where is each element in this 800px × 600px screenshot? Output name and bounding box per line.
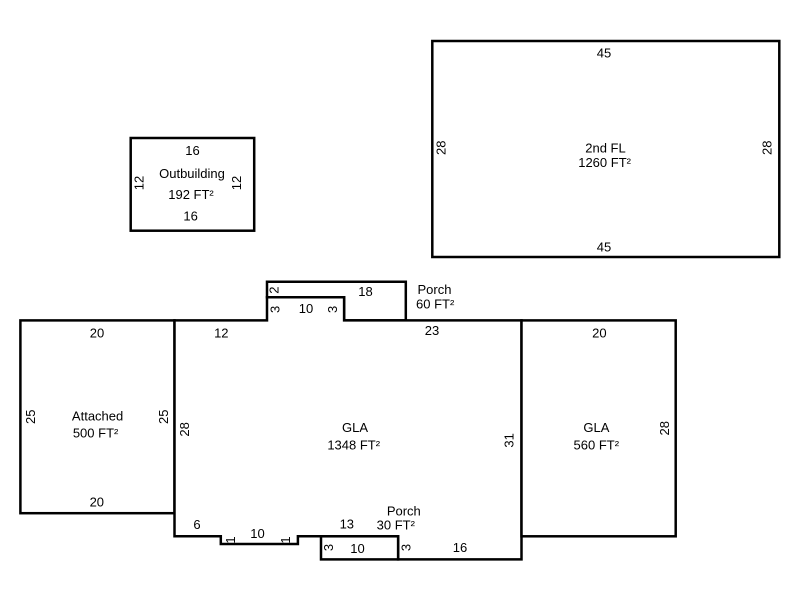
svg-text:10: 10 xyxy=(299,301,313,316)
svg-text:45: 45 xyxy=(597,239,611,254)
svg-text:560 FT²: 560 FT² xyxy=(574,437,620,452)
svg-text:28: 28 xyxy=(759,141,774,155)
svg-text:12: 12 xyxy=(132,176,147,190)
svg-text:45: 45 xyxy=(597,46,611,61)
svg-text:1: 1 xyxy=(278,536,293,543)
svg-text:Outbuilding: Outbuilding xyxy=(159,166,225,181)
svg-text:1348 FT²: 1348 FT² xyxy=(327,438,380,453)
svg-text:18: 18 xyxy=(358,284,372,299)
svg-text:2nd FL: 2nd FL xyxy=(585,141,625,156)
svg-text:13: 13 xyxy=(340,517,354,532)
svg-text:Porch: Porch xyxy=(387,504,421,519)
svg-text:1: 1 xyxy=(223,536,238,543)
svg-text:16: 16 xyxy=(453,540,467,555)
svg-text:GLA: GLA xyxy=(583,420,609,435)
svg-text:31: 31 xyxy=(502,433,517,447)
svg-text:10: 10 xyxy=(250,526,264,541)
svg-text:16: 16 xyxy=(183,208,197,223)
svg-text:Porch: Porch xyxy=(418,282,452,297)
svg-text:28: 28 xyxy=(177,422,192,436)
svg-text:Attached: Attached xyxy=(72,408,123,423)
svg-text:25: 25 xyxy=(23,410,38,424)
svg-text:60 FT²: 60 FT² xyxy=(416,297,455,312)
svg-text:500 FT²: 500 FT² xyxy=(73,426,119,441)
svg-text:28: 28 xyxy=(434,141,449,155)
svg-text:2: 2 xyxy=(267,286,282,293)
svg-text:3: 3 xyxy=(325,306,340,313)
svg-text:1260 FT²: 1260 FT² xyxy=(578,155,631,170)
svg-text:3: 3 xyxy=(268,306,283,313)
svg-text:12: 12 xyxy=(214,326,228,341)
svg-text:12: 12 xyxy=(229,176,244,190)
svg-text:3: 3 xyxy=(321,544,336,551)
svg-text:10: 10 xyxy=(350,541,364,556)
svg-text:3: 3 xyxy=(399,544,414,551)
svg-text:6: 6 xyxy=(193,517,200,532)
svg-text:28: 28 xyxy=(657,421,672,435)
svg-text:30 FT²: 30 FT² xyxy=(377,518,416,533)
svg-text:GLA: GLA xyxy=(342,420,368,435)
svg-text:16: 16 xyxy=(185,143,199,158)
svg-text:20: 20 xyxy=(592,326,606,341)
svg-text:20: 20 xyxy=(90,495,104,510)
svg-text:25: 25 xyxy=(156,410,171,424)
svg-text:192 FT²: 192 FT² xyxy=(168,187,214,202)
svg-text:23: 23 xyxy=(425,323,439,338)
svg-text:20: 20 xyxy=(90,326,104,341)
